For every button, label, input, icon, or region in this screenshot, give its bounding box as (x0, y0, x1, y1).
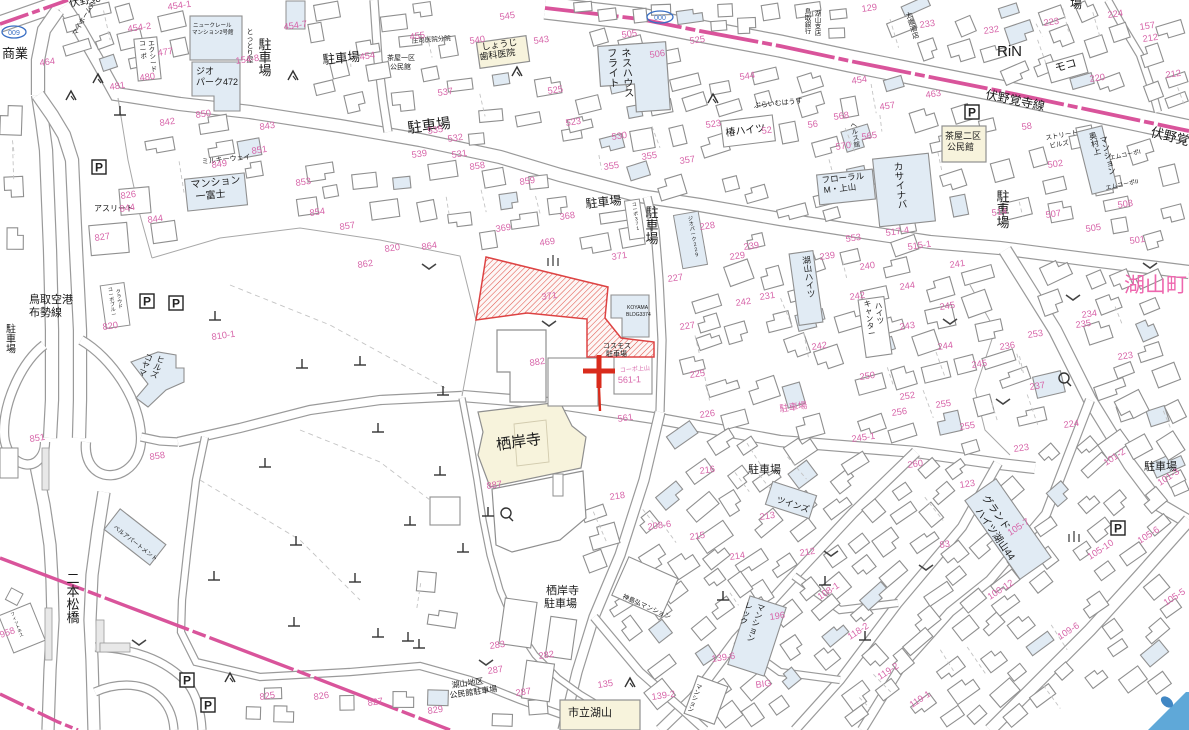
svg-text:214: 214 (729, 550, 746, 562)
svg-text:457: 457 (879, 100, 896, 112)
svg-text:P: P (183, 674, 191, 688)
svg-text:287: 287 (515, 686, 532, 698)
svg-text:242: 242 (735, 296, 752, 308)
svg-text:BLDG3374: BLDG3374 (626, 312, 651, 318)
svg-text:218: 218 (609, 490, 626, 502)
svg-text:260: 260 (907, 458, 924, 470)
svg-text:232: 232 (983, 24, 1000, 36)
svg-text:355: 355 (641, 150, 658, 162)
svg-text:場: 場 (645, 231, 658, 246)
svg-text:P: P (968, 106, 976, 120)
svg-text:255: 255 (935, 398, 952, 410)
svg-text:P: P (204, 699, 212, 713)
svg-text:ー: ー (111, 312, 117, 319)
svg-text:マンション2号館: マンション2号館 (192, 28, 234, 36)
svg-text:514: 514 (991, 206, 1008, 218)
svg-text:233: 233 (919, 18, 936, 30)
svg-text:553: 553 (845, 232, 862, 244)
svg-text:212: 212 (1142, 32, 1159, 44)
svg-text:508: 508 (1117, 198, 1134, 210)
svg-text:227: 227 (679, 320, 696, 332)
svg-text:231: 231 (759, 290, 776, 302)
svg-text:224: 224 (1107, 8, 1124, 20)
svg-text:ド: ド (118, 304, 124, 311)
svg-text:858: 858 (469, 160, 486, 172)
svg-text:252: 252 (899, 390, 916, 402)
svg-text:525: 525 (547, 84, 564, 96)
svg-text:公民館: 公民館 (947, 141, 974, 152)
svg-text:820: 820 (384, 242, 401, 254)
svg-text:茶屋二区: 茶屋二区 (945, 130, 981, 141)
svg-text:825: 825 (259, 690, 276, 702)
svg-text:009: 009 (8, 30, 20, 37)
svg-text:229: 229 (729, 250, 746, 262)
svg-text:371: 371 (611, 250, 628, 262)
svg-text:237: 237 (1029, 380, 1046, 392)
svg-text:RiN: RiN (997, 43, 1022, 60)
svg-text:239: 239 (819, 250, 836, 262)
svg-text:227: 227 (667, 272, 684, 284)
svg-text:849: 849 (211, 158, 228, 170)
svg-text:店: 店 (815, 28, 822, 37)
svg-text:コスモス: コスモス (603, 342, 631, 350)
svg-text:ツ: ツ (806, 288, 816, 299)
svg-text:223: 223 (1043, 16, 1060, 28)
svg-text:と: と (247, 28, 254, 36)
svg-text:561: 561 (617, 412, 634, 424)
svg-text:507: 507 (1045, 208, 1062, 220)
svg-text:橋: 橋 (66, 610, 79, 625)
svg-text:530: 530 (611, 130, 628, 142)
svg-text:224: 224 (1063, 418, 1080, 430)
svg-text:250: 250 (859, 370, 876, 382)
svg-text:ト: ト (609, 78, 620, 90)
svg-text:商業: 商業 (2, 46, 28, 61)
svg-text:535: 535 (427, 124, 444, 136)
svg-text:241: 241 (949, 258, 966, 270)
svg-text:853: 853 (295, 176, 312, 188)
svg-text:827: 827 (94, 231, 111, 243)
svg-text:469: 469 (539, 236, 556, 248)
svg-text:477: 477 (157, 46, 174, 58)
svg-text:場: 場 (6, 343, 16, 356)
svg-text:525: 525 (689, 34, 706, 46)
svg-text:544: 544 (739, 70, 756, 82)
svg-text:123: 123 (959, 478, 976, 490)
svg-text:135: 135 (597, 678, 614, 690)
svg-text:570: 570 (835, 140, 852, 152)
svg-text:481: 481 (109, 80, 126, 92)
svg-text:245: 245 (971, 358, 988, 370)
svg-text:56: 56 (807, 119, 819, 130)
svg-text:256: 256 (891, 406, 908, 418)
svg-text:539: 539 (411, 148, 428, 160)
svg-text:357: 357 (679, 154, 696, 166)
svg-text:454: 454 (851, 74, 868, 86)
svg-text:ニュークレール: ニュークレール (193, 22, 232, 29)
svg-text:234: 234 (1081, 308, 1098, 320)
svg-text:223: 223 (1013, 442, 1030, 454)
svg-text:場: 場 (996, 215, 1009, 230)
svg-text:827: 827 (367, 696, 384, 708)
svg-text:864: 864 (421, 240, 438, 252)
svg-text:454: 454 (359, 50, 376, 62)
svg-text:244: 244 (937, 340, 954, 352)
svg-text:129: 129 (861, 2, 878, 14)
svg-text:253: 253 (1027, 328, 1044, 340)
svg-text:565: 565 (861, 130, 878, 142)
svg-text:パーク472: パーク472 (196, 77, 238, 87)
svg-text:506: 506 (649, 48, 666, 60)
svg-text:862: 862 (357, 258, 374, 270)
svg-text:244: 244 (899, 280, 916, 292)
svg-text:228: 228 (699, 220, 716, 232)
svg-text:52: 52 (761, 125, 773, 136)
svg-text:842: 842 (159, 116, 176, 128)
svg-text:368: 368 (559, 210, 576, 222)
svg-text:854: 854 (309, 206, 326, 218)
svg-text:KOYAMA: KOYAMA (627, 305, 649, 311)
svg-text:464: 464 (39, 56, 56, 68)
svg-text:455: 455 (409, 30, 426, 42)
svg-text:543: 543 (533, 34, 550, 46)
svg-text:480: 480 (139, 71, 156, 83)
svg-text:布勢線: 布勢線 (29, 305, 62, 319)
svg-text:243: 243 (899, 320, 916, 332)
svg-text:355: 355 (603, 160, 620, 172)
svg-text:215: 215 (689, 530, 706, 542)
svg-text:283: 283 (489, 639, 506, 651)
svg-text:255: 255 (959, 420, 976, 432)
svg-text:240: 240 (859, 260, 876, 272)
svg-text:ス: ス (624, 88, 635, 100)
svg-text:ー: ー (867, 329, 876, 339)
svg-text:P: P (95, 161, 103, 175)
svg-text:P: P (172, 297, 180, 311)
svg-text:820: 820 (102, 320, 119, 332)
svg-text:857: 857 (339, 220, 356, 232)
svg-text:216: 216 (699, 464, 716, 476)
svg-text:鳥取空港: 鳥取空港 (29, 292, 73, 306)
svg-text:282: 282 (538, 649, 555, 661)
svg-text:っ: っ (247, 36, 254, 43)
svg-text:バ: バ (897, 199, 908, 211)
svg-text:000: 000 (654, 15, 666, 22)
svg-text:369: 369 (495, 222, 512, 234)
svg-text:212: 212 (799, 546, 816, 558)
svg-text:523: 523 (565, 116, 582, 128)
svg-text:行: 行 (805, 26, 812, 35)
svg-text:236: 236 (999, 340, 1016, 352)
svg-text:531: 531 (451, 148, 468, 160)
svg-text:523: 523 (705, 118, 722, 130)
svg-text:568: 568 (833, 110, 850, 122)
svg-text:駐車場: 駐車場 (606, 349, 627, 358)
svg-text:湖山町: 湖山町 (1124, 274, 1187, 297)
svg-text:駐車場: 駐車場 (748, 462, 781, 476)
svg-text:851: 851 (29, 432, 46, 444)
svg-text:826: 826 (313, 690, 330, 702)
svg-text:ジオ: ジオ (196, 66, 214, 76)
svg-text:212: 212 (1165, 68, 1182, 80)
svg-text:545: 545 (499, 10, 516, 22)
svg-text:826: 826 (120, 189, 137, 201)
svg-text:213: 213 (759, 510, 776, 522)
svg-text:242: 242 (811, 340, 828, 352)
svg-text:371: 371 (541, 290, 558, 302)
svg-text:58: 58 (1021, 121, 1033, 132)
svg-text:882: 882 (529, 356, 546, 368)
svg-text:843: 843 (259, 120, 276, 132)
svg-text:225: 225 (689, 368, 706, 380)
svg-text:532: 532 (447, 132, 464, 144)
svg-text:561-1: 561-1 (618, 374, 641, 385)
svg-text:83: 83 (939, 539, 951, 550)
svg-text:場: 場 (1070, 0, 1082, 11)
svg-text:茶屋一区: 茶屋一区 (387, 53, 415, 62)
svg-text:505: 505 (621, 28, 638, 40)
svg-text:829: 829 (427, 704, 444, 716)
svg-text:540: 540 (469, 34, 486, 46)
svg-text:287: 287 (487, 664, 504, 676)
svg-text:858: 858 (149, 450, 166, 462)
svg-text:844: 844 (147, 213, 164, 225)
svg-text:226: 226 (699, 408, 716, 420)
svg-text:463: 463 (925, 88, 942, 100)
svg-text:栖岸寺: 栖岸寺 (546, 583, 579, 597)
svg-text:887: 887 (486, 479, 503, 491)
svg-text:と: と (247, 42, 254, 50)
svg-text:196: 196 (769, 610, 786, 622)
svg-text:公民館: 公民館 (390, 62, 411, 71)
svg-text:市立湖山: 市立湖山 (568, 705, 612, 719)
svg-text:850: 850 (195, 108, 212, 120)
svg-text:245: 245 (939, 300, 956, 312)
svg-text:502: 502 (1047, 158, 1064, 170)
svg-text:239: 239 (743, 240, 760, 252)
svg-text:537: 537 (437, 86, 454, 98)
svg-text:851: 851 (251, 144, 268, 156)
svg-text:P: P (1114, 522, 1122, 536)
svg-text:501: 501 (1129, 234, 1146, 246)
svg-text:場: 場 (258, 63, 271, 78)
svg-text:505: 505 (1085, 222, 1102, 234)
svg-text:223: 223 (1117, 350, 1134, 362)
svg-text:859: 859 (519, 175, 536, 187)
svg-text:P: P (143, 295, 151, 309)
svg-text:220: 220 (1089, 72, 1106, 84)
svg-text:242: 242 (849, 290, 866, 302)
svg-text:844: 844 (119, 202, 136, 214)
svg-text:157: 157 (1139, 20, 1156, 32)
svg-text:ツ: ツ (876, 316, 885, 326)
svg-text:駐車場: 駐車場 (544, 596, 577, 610)
